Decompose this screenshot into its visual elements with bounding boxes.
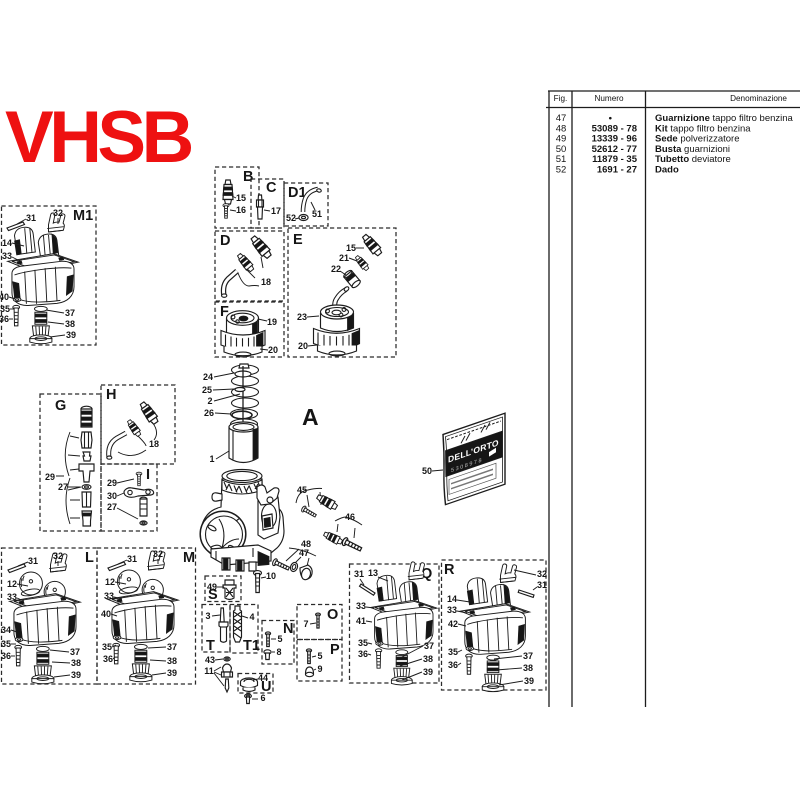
svg-text:9: 9 [317, 664, 322, 674]
svg-text:31: 31 [28, 556, 38, 566]
svg-text:18: 18 [149, 439, 159, 449]
svg-text:39: 39 [167, 668, 177, 678]
svg-text:3: 3 [205, 611, 210, 621]
svg-text:44: 44 [258, 673, 268, 683]
svg-text:39: 39 [423, 667, 433, 677]
svg-text:33: 33 [104, 591, 114, 601]
svg-text:N: N [283, 621, 293, 637]
svg-text:24: 24 [203, 372, 213, 382]
svg-text:14: 14 [447, 594, 457, 604]
svg-text:39: 39 [524, 676, 534, 686]
svg-text:39: 39 [71, 670, 81, 680]
svg-text:33: 33 [356, 601, 366, 611]
svg-text:47: 47 [299, 548, 309, 558]
svg-text:2: 2 [207, 396, 212, 406]
svg-text:I: I [146, 467, 150, 483]
svg-text:31: 31 [537, 580, 547, 590]
svg-text:M: M [183, 550, 195, 566]
svg-text:31: 31 [354, 569, 364, 579]
svg-text:M1: M1 [73, 208, 93, 224]
svg-text:23: 23 [297, 312, 307, 322]
svg-text:26: 26 [204, 408, 214, 418]
svg-text:20: 20 [298, 341, 308, 351]
svg-text:6: 6 [260, 693, 265, 703]
svg-text:10: 10 [266, 571, 276, 581]
svg-text:29: 29 [45, 472, 55, 482]
svg-text:T: T [206, 638, 215, 654]
svg-text:12: 12 [105, 577, 115, 587]
svg-text:52: 52 [556, 165, 567, 176]
svg-text:25: 25 [202, 385, 212, 395]
svg-text:P: P [330, 642, 340, 658]
svg-text:32: 32 [53, 551, 63, 561]
svg-text:12: 12 [7, 579, 17, 589]
svg-text:52: 52 [286, 213, 296, 223]
svg-text:42: 42 [448, 619, 458, 629]
svg-text:38: 38 [65, 319, 75, 329]
svg-text:35: 35 [1, 639, 11, 649]
svg-text:36: 36 [358, 649, 368, 659]
svg-text:1691 - 27: 1691 - 27 [597, 165, 637, 176]
svg-text:49: 49 [207, 582, 217, 592]
svg-text:36: 36 [103, 654, 113, 664]
svg-text:5: 5 [277, 634, 282, 644]
svg-text:H: H [106, 387, 116, 403]
svg-text:16: 16 [236, 205, 246, 215]
svg-text:38: 38 [523, 663, 533, 673]
svg-text:13: 13 [368, 568, 378, 578]
svg-text:31: 31 [26, 213, 36, 223]
svg-text:Denominazione: Denominazione [730, 94, 787, 103]
svg-text:D: D [220, 233, 230, 249]
svg-text:22: 22 [331, 264, 341, 274]
svg-text:21: 21 [339, 253, 349, 263]
svg-text:35: 35 [358, 638, 368, 648]
svg-text:33: 33 [7, 592, 17, 602]
svg-text:C: C [266, 180, 277, 196]
svg-text:43: 43 [205, 655, 215, 665]
svg-text:7: 7 [303, 619, 308, 629]
svg-text:38: 38 [71, 658, 81, 668]
svg-text:37: 37 [65, 308, 75, 318]
svg-text:14: 14 [2, 238, 12, 248]
svg-text:G: G [55, 398, 66, 414]
svg-text:27: 27 [107, 502, 117, 512]
svg-text:38: 38 [167, 656, 177, 666]
svg-text:40: 40 [0, 292, 9, 302]
svg-text:8: 8 [276, 647, 281, 657]
svg-text:O: O [327, 607, 338, 623]
svg-text:20: 20 [268, 345, 278, 355]
svg-text:11: 11 [204, 666, 214, 676]
svg-text:5: 5 [317, 651, 322, 661]
svg-text:A: A [302, 404, 319, 430]
svg-text:35: 35 [448, 647, 458, 657]
svg-text:36: 36 [1, 651, 11, 661]
svg-text:Dado: Dado [655, 165, 679, 176]
svg-text:T1: T1 [243, 638, 260, 654]
svg-text:Fig.: Fig. [554, 94, 568, 103]
svg-text:29: 29 [107, 478, 117, 488]
svg-text:Numero: Numero [594, 94, 624, 103]
svg-text:41: 41 [356, 616, 366, 626]
svg-text:19: 19 [267, 317, 277, 327]
svg-text:B: B [243, 169, 253, 185]
svg-text:36: 36 [448, 660, 458, 670]
svg-text:32: 32 [153, 549, 163, 559]
svg-text:35: 35 [102, 642, 112, 652]
svg-text:30: 30 [107, 491, 117, 501]
svg-text:1: 1 [209, 454, 214, 464]
svg-text:15: 15 [346, 243, 356, 253]
svg-text:32: 32 [53, 208, 63, 218]
svg-text:31: 31 [127, 554, 137, 564]
svg-text:VHSB: VHSB [5, 97, 192, 178]
svg-text:33: 33 [447, 605, 457, 615]
svg-text:L: L [85, 550, 94, 566]
svg-text:37: 37 [167, 642, 177, 652]
svg-text:36: 36 [0, 314, 9, 324]
svg-text:38: 38 [423, 654, 433, 664]
svg-text:18: 18 [261, 277, 271, 287]
svg-text:R: R [444, 562, 455, 578]
svg-text:15: 15 [236, 193, 246, 203]
svg-text:39: 39 [66, 330, 76, 340]
svg-text:4: 4 [249, 612, 254, 622]
svg-text:40: 40 [101, 609, 111, 619]
svg-text:34: 34 [1, 625, 11, 635]
svg-text:E: E [293, 232, 303, 248]
svg-text:51: 51 [312, 209, 322, 219]
svg-text:37: 37 [70, 647, 80, 657]
svg-text:32: 32 [537, 569, 547, 579]
svg-text:50: 50 [422, 466, 432, 476]
svg-text:33: 33 [2, 251, 12, 261]
svg-text:37: 37 [424, 641, 434, 651]
svg-text:17: 17 [271, 206, 281, 216]
svg-text:37: 37 [523, 651, 533, 661]
svg-text:35: 35 [0, 304, 10, 314]
